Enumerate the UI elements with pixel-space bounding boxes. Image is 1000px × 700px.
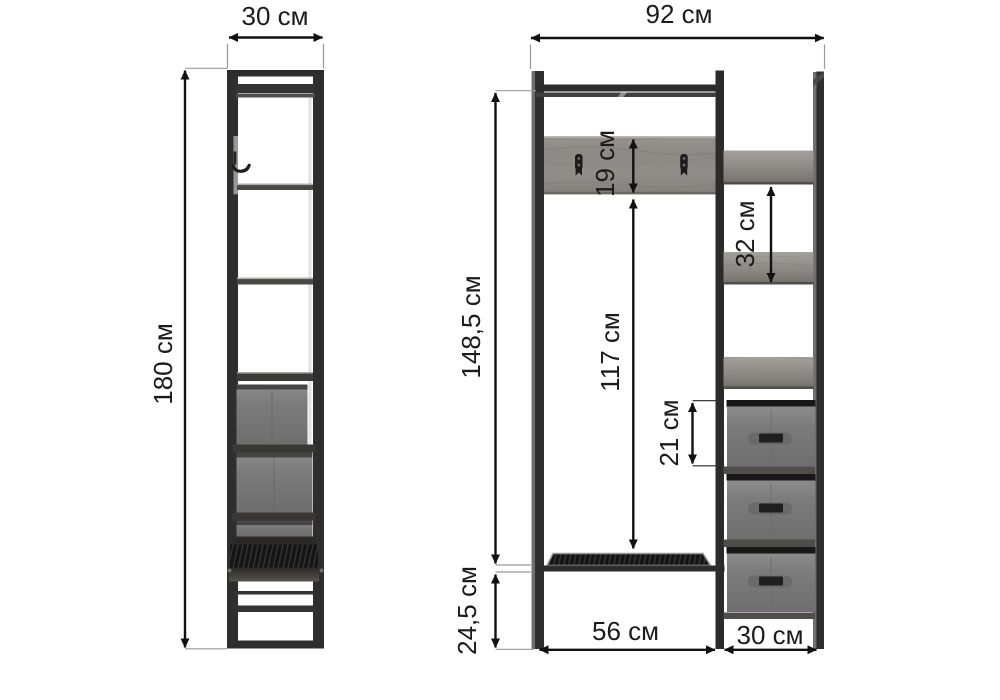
svg-text:148,5 см: 148,5 см bbox=[456, 275, 486, 378]
svg-text:32 см: 32 см bbox=[730, 200, 760, 267]
svg-text:19 см: 19 см bbox=[590, 130, 620, 197]
svg-text:30 см: 30 см bbox=[241, 1, 308, 31]
svg-text:30 см: 30 см bbox=[736, 620, 803, 650]
svg-text:24,5 см: 24,5 см bbox=[452, 566, 482, 655]
svg-text:117 см: 117 см bbox=[595, 312, 625, 392]
svg-text:21 см: 21 см bbox=[654, 399, 684, 466]
svg-text:180 см: 180 см bbox=[148, 323, 178, 404]
svg-text:56 см: 56 см bbox=[592, 616, 659, 646]
svg-text:92 см: 92 см bbox=[645, 0, 712, 29]
